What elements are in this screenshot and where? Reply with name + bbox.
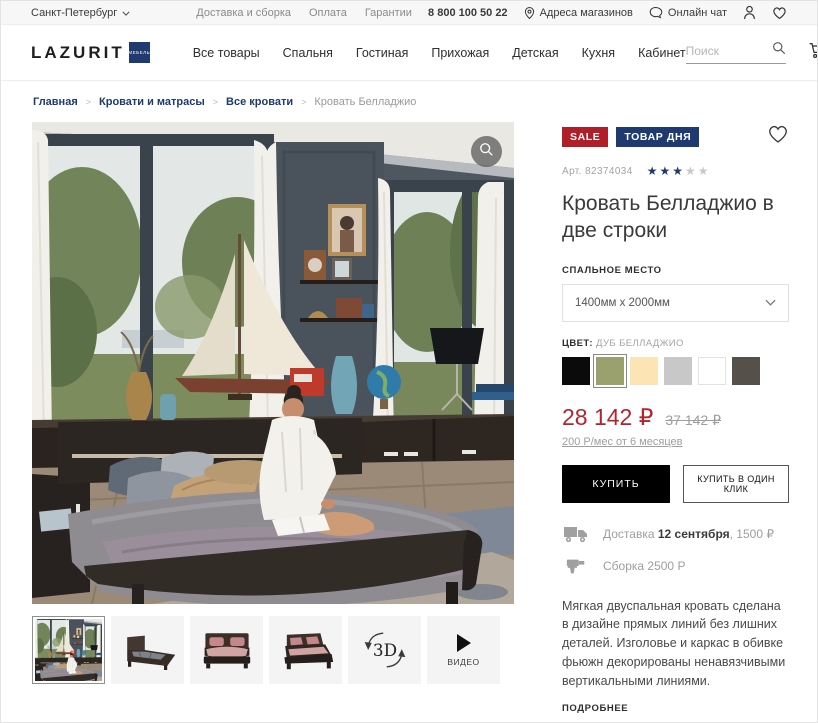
sku: Арт. 82374034 [562, 166, 633, 177]
search-box [686, 41, 786, 64]
favorite-heart-icon[interactable] [767, 124, 789, 149]
product-description: Мягкая двуспальная кровать сделана в диз… [562, 597, 789, 691]
zoom-button[interactable] [471, 136, 502, 167]
nav-item-all[interactable]: Все товары [193, 46, 260, 60]
color-row: ЦВЕТ: ДУБ БЕЛЛАДЖИО [562, 338, 789, 349]
city-label: Санкт-Петербург [31, 7, 117, 19]
link-warranty[interactable]: Гарантии [365, 7, 412, 19]
chevron-down-icon [765, 297, 776, 309]
thumbnail-video[interactable]: ВИДЕО [427, 616, 500, 684]
link-delivery[interactable]: Доставка и сборка [196, 7, 291, 19]
delivery-prefix: Доставка [603, 527, 658, 541]
page-title: Кровать Белладжио в две строки [562, 190, 789, 245]
product-info: SALE ТОВАР ДНЯ Арт. 82374034 ★ ★ ★ ★ ★ [562, 122, 789, 714]
main-nav: Все товары Спальня Гостиная Прихожая Дет… [193, 46, 686, 60]
color-swatches [562, 357, 789, 385]
rotate-3d-icon: 3D [356, 627, 414, 673]
color-swatch[interactable] [698, 357, 726, 385]
nav-item-kitchen[interactable]: Кухня [582, 46, 615, 60]
deal-of-day-badge: ТОВАР ДНЯ [616, 127, 699, 147]
topbar-right: 8 800 100 50 22 Адреса магазинов Онлайн … [428, 5, 787, 20]
cart-icon [808, 46, 818, 63]
video-label: ВИДЕО [447, 657, 479, 667]
shipping-info: Доставка 12 сентября, 1500 ₽ Сборка 2500… [562, 525, 789, 575]
color-swatch[interactable] [596, 357, 624, 385]
thumbnail-strip: 3D ВИДЕО [32, 616, 514, 684]
thumbnail-photo[interactable] [32, 616, 105, 684]
thumbnail-bed-front[interactable] [190, 616, 263, 684]
page: Санкт-Петербург Доставка и сборка Оплата… [0, 0, 818, 723]
color-swatch[interactable] [630, 357, 658, 385]
cart-button[interactable]: 24 [808, 41, 818, 64]
nav-item-bedroom[interactable]: Спальня [283, 46, 333, 60]
breadcrumb-separator: > [301, 97, 306, 107]
nav-item-hallway[interactable]: Прихожая [431, 46, 489, 60]
assembly-text: Сборка 2500 Р [603, 559, 685, 573]
user-icon[interactable] [743, 5, 756, 20]
bed-front-image [195, 624, 259, 676]
more-link[interactable]: ПОДРОБНЕЕ [562, 703, 789, 714]
logo-mark: МЕБЕЛЬ [129, 42, 150, 63]
bedroom-photo [32, 122, 514, 604]
size-value: 1400мм x 2000мм [575, 297, 670, 309]
rating-star: ★ [698, 165, 709, 177]
thumbnail-bed-frame[interactable] [111, 616, 184, 684]
assembly-row: Сборка 2500 Р [562, 557, 789, 575]
chevron-down-icon [122, 7, 130, 19]
online-chat-label: Онлайн чат [668, 7, 727, 19]
city-selector[interactable]: Санкт-Петербург [31, 7, 130, 19]
buy-row: КУПИТЬ КУПИТЬ В ОДИН КЛИК [562, 465, 789, 503]
product-gallery: 3D ВИДЕО [32, 122, 514, 714]
badges-row: SALE ТОВАР ДНЯ [562, 124, 789, 149]
thumbnail-photo-image [35, 619, 102, 681]
truck-icon [562, 525, 589, 543]
nav-item-kids[interactable]: Детская [512, 46, 558, 60]
sku-rating-row: Арт. 82374034 ★ ★ ★ ★ ★ [562, 165, 789, 177]
color-swatch[interactable] [732, 357, 760, 385]
logo[interactable]: LAZURIT МЕБЕЛЬ [31, 42, 150, 63]
link-payment[interactable]: Оплата [309, 7, 347, 19]
thumbnail-3d-view[interactable]: 3D [348, 616, 421, 684]
drill-icon [562, 557, 589, 575]
size-select[interactable]: 1400мм x 2000мм [562, 284, 789, 322]
store-addresses-link[interactable]: Адреса магазинов [524, 6, 633, 20]
breadcrumb-link-all-beds[interactable]: Все кровати [226, 96, 293, 108]
breadcrumb-link-beds-mattresses[interactable]: Кровати и матрасы [99, 96, 205, 108]
thumbnail-bed-angle[interactable] [269, 616, 342, 684]
zoom-icon [479, 142, 494, 162]
color-swatch[interactable] [664, 357, 692, 385]
buy-button[interactable]: КУПИТЬ [562, 465, 670, 503]
rating-star: ★ [647, 165, 658, 177]
main-content: 3D ВИДЕО SALE ТОВАР ДНЯ [1, 122, 817, 714]
color-label: ЦВЕТ: [562, 338, 593, 349]
location-pin-icon [524, 6, 535, 20]
online-chat-link[interactable]: Онлайн чат [649, 6, 727, 19]
delivery-text: Доставка 12 сентября, 1500 ₽ [603, 527, 774, 541]
breadcrumb-separator: > [213, 97, 218, 107]
search-input[interactable] [686, 44, 772, 58]
product-main-image[interactable] [32, 122, 514, 604]
size-label: СПАЛЬНОЕ МЕСТО [562, 265, 789, 276]
topbar: Санкт-Петербург Доставка и сборка Оплата… [1, 1, 817, 25]
breadcrumb-link-home[interactable]: Главная [33, 96, 78, 108]
play-icon [457, 634, 471, 652]
old-price: 37 142 ₽ [665, 412, 721, 429]
logo-text: LAZURIT [31, 43, 125, 63]
bed-angle-image [274, 624, 338, 676]
svg-text:3D: 3D [372, 640, 396, 660]
color-name: ДУБ БЕЛЛАДЖИО [596, 338, 684, 349]
delivery-row: Доставка 12 сентября, 1500 ₽ [562, 525, 789, 543]
color-swatch[interactable] [562, 357, 590, 385]
rating-star: ★ [685, 165, 696, 177]
breadcrumb-separator: > [86, 97, 91, 107]
rating-star: ★ [660, 165, 671, 177]
rating: ★ ★ ★ ★ ★ [647, 165, 709, 177]
phone-number[interactable]: 8 800 100 50 22 [428, 7, 508, 19]
installment-link[interactable]: 200 Р/мес от 6 месяцев [562, 436, 682, 448]
store-addresses-label: Адреса магазинов [540, 7, 633, 19]
header: LAZURIT МЕБЕЛЬ Все товары Спальня Гостин… [1, 25, 817, 81]
topbar-links: Доставка и сборка Оплата Гарантии [196, 7, 412, 19]
delivery-price: , 1500 ₽ [730, 527, 774, 541]
heart-icon[interactable] [772, 6, 787, 20]
nav-item-livingroom[interactable]: Гостиная [356, 46, 408, 60]
rating-star: ★ [672, 165, 683, 177]
price-row: 28 142 ₽ 37 142 ₽ [562, 404, 789, 431]
current-price: 28 142 ₽ [562, 404, 653, 431]
nav-item-office[interactable]: Кабинет [638, 46, 686, 60]
one-click-buy-button[interactable]: КУПИТЬ В ОДИН КЛИК [683, 465, 789, 503]
sale-badge: SALE [562, 127, 608, 147]
breadcrumb-current: Кровать Белладжио [314, 96, 416, 108]
delivery-date: 12 сентября [658, 527, 730, 541]
bed-frame-image [116, 624, 180, 676]
chat-bubble-icon [649, 6, 663, 19]
search-icon[interactable] [772, 41, 786, 60]
breadcrumb: Главная > Кровати и матрасы > Все кроват… [1, 81, 817, 122]
